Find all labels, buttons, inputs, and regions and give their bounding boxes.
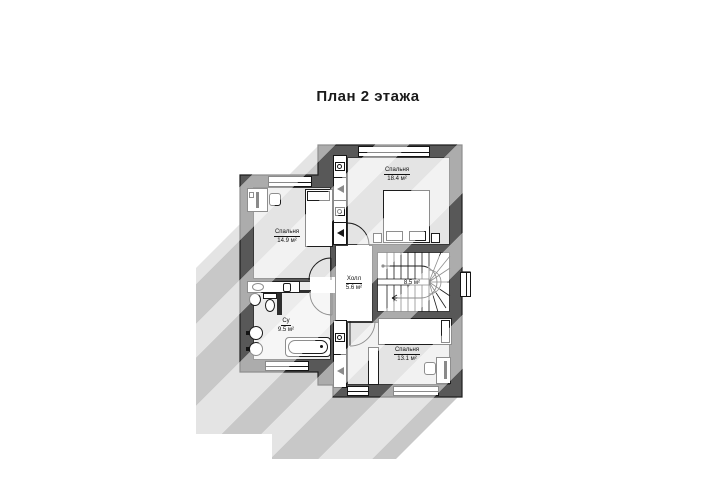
- room-area: 8.5 м²: [404, 279, 420, 287]
- room-name: Холл: [346, 276, 362, 284]
- vent-cell: [334, 321, 346, 355]
- room-area: 13.1 м²: [397, 355, 416, 363]
- stair-winders: [429, 252, 450, 312]
- room-area: 5.6 м²: [346, 284, 362, 292]
- room-name: Спальня: [274, 229, 300, 237]
- vent-shaft-upper: [333, 155, 347, 245]
- door-swing: [310, 293, 332, 315]
- vent-duct-icon: [335, 207, 345, 216]
- floor-plan-canvas: План 2 этажа: [0, 0, 711, 502]
- door-swing: [309, 258, 331, 280]
- vent-duct-icon: [335, 333, 345, 342]
- room-area: 18.4 м²: [387, 175, 406, 183]
- room-area: 9.5 м²: [278, 326, 294, 334]
- vent-cell: [334, 355, 346, 388]
- flue-triangle-icon: [337, 367, 344, 375]
- room-label-bedroom-top-left: Спальня 14.9 м²: [269, 229, 305, 245]
- vent-cell: [334, 201, 346, 223]
- room-label-stairs: 8.5 м²: [398, 279, 426, 287]
- room-label-bedroom-bottom: Спальня 13.1 м²: [389, 347, 425, 363]
- vent-shaft-lower: [333, 320, 347, 388]
- room-label-bathroom: Су 9.5 м²: [270, 318, 302, 334]
- room-label-bedroom-top-right: Спальня 18.4 м²: [379, 167, 415, 183]
- door-swing: [347, 223, 369, 245]
- room-name: Спальня: [394, 347, 420, 355]
- door-swing: [350, 321, 375, 346]
- vent-cell: [334, 178, 346, 200]
- plan-linework: [0, 0, 711, 502]
- walk-line-start: [381, 264, 384, 267]
- room-name: Су: [281, 318, 290, 326]
- room-label-hall: Холл 5.6 м²: [338, 276, 370, 292]
- flue-triangle-icon: [337, 185, 344, 193]
- vent-cell: [334, 223, 346, 244]
- flue-triangle-icon: [337, 229, 344, 237]
- room-name: Спальня: [384, 167, 410, 175]
- vent-cell: [334, 156, 346, 178]
- vent-duct-icon: [335, 162, 345, 171]
- room-area: 14.9 м²: [277, 237, 296, 245]
